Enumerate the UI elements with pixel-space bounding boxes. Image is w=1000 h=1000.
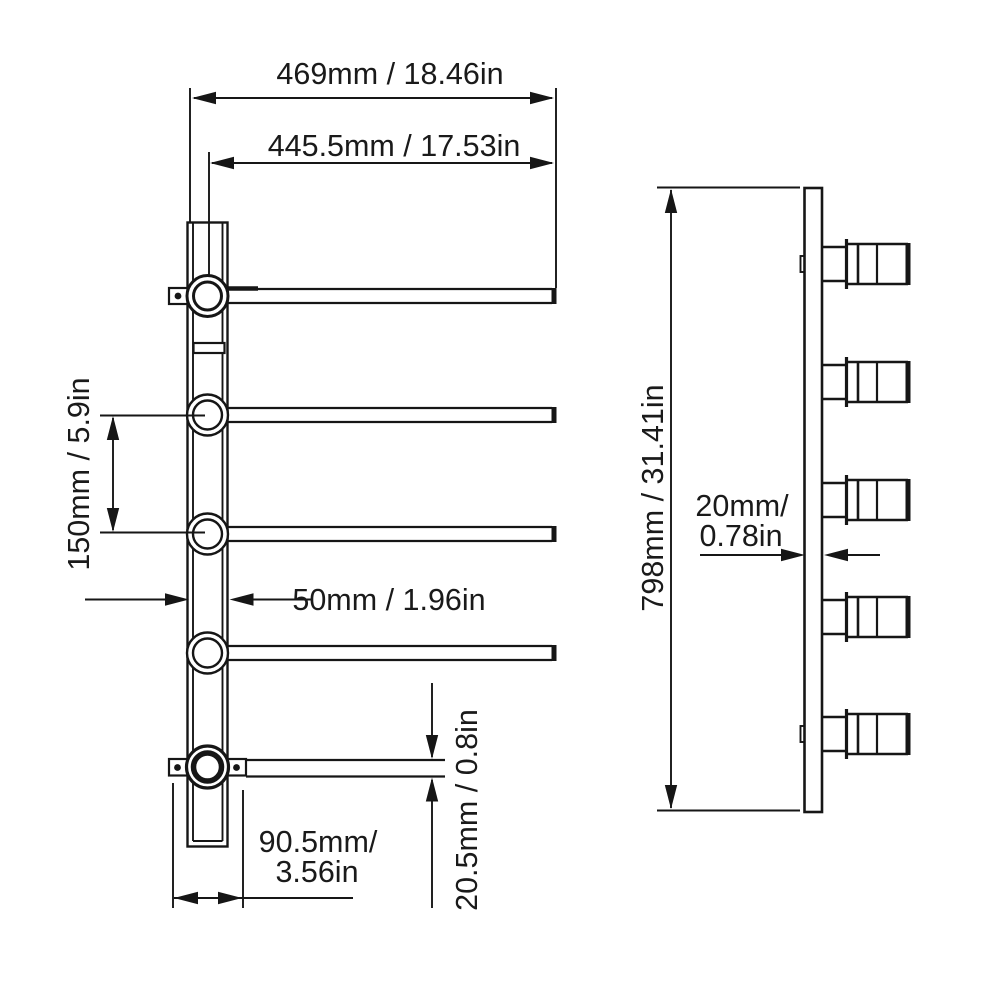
- towel-rack-dimension-drawing: 469mm / 18.46in 445.5mm / 17.53in 150mm …: [0, 0, 1000, 1000]
- bar-stub-3: [823, 475, 911, 525]
- arrowhead-left: [174, 892, 198, 904]
- towel-bar-3: [228, 526, 557, 542]
- bar-holder-3: [187, 514, 228, 555]
- bar-stub-4: [823, 592, 911, 642]
- bar-stub-2: [823, 357, 911, 407]
- arrowhead-right: [781, 549, 805, 561]
- bar-stub-1: [823, 239, 911, 289]
- base-offset-label-line1: 90.5mm/: [259, 825, 378, 859]
- arrowhead-right: [218, 892, 242, 904]
- mounting-plate: [805, 188, 823, 812]
- arrowhead-left: [230, 593, 254, 605]
- bar-holder-1: [187, 276, 228, 317]
- bar-stub-5: [823, 709, 911, 759]
- arrowhead-left: [824, 549, 848, 561]
- overall-width-label: 469mm / 18.46in: [276, 57, 503, 91]
- arrowhead-down: [665, 785, 677, 809]
- bar-length-label: 445.5mm / 17.53in: [268, 129, 521, 163]
- arrowhead-left: [192, 92, 216, 104]
- arrowhead-down: [107, 508, 119, 532]
- post-connector-detail: [194, 343, 225, 353]
- screenshot-canvas: 469mm / 18.46in 445.5mm / 17.53in 150mm …: [0, 0, 1000, 1000]
- towel-bar-4: [228, 645, 557, 661]
- dimension-overall-width: 469mm / 18.46in: [190, 57, 556, 288]
- plate-depth-label-line1: 20mm/: [695, 489, 789, 523]
- base-offset-label-line2: 3.56in: [275, 855, 358, 889]
- bar-holder-5: [187, 746, 229, 788]
- arrowhead-down: [426, 735, 438, 759]
- towel-bar-1: [228, 288, 557, 304]
- towel-bar-5: [246, 760, 445, 777]
- dimension-post-width: 50mm / 1.96in: [85, 583, 486, 617]
- arrowhead-up: [426, 778, 438, 802]
- overall-height-label: 798mm / 31.41in: [636, 384, 670, 611]
- dimension-bar-spacing: 150mm / 5.9in: [62, 377, 205, 570]
- bar-holder-4: [187, 633, 228, 674]
- dimension-bar-length: 445.5mm / 17.53in: [209, 129, 554, 275]
- arrowhead-right: [165, 593, 189, 605]
- dimension-plate-depth: 20mm/ 0.78in: [695, 489, 880, 561]
- arrowhead-left: [210, 157, 234, 169]
- arrowhead-up: [107, 416, 119, 440]
- towel-bar-2: [228, 407, 557, 423]
- arrowhead-right: [530, 92, 554, 104]
- arrowhead-right: [530, 157, 554, 169]
- front-view: [169, 223, 557, 847]
- post-width-label: 50mm / 1.96in: [292, 583, 485, 617]
- bar-spacing-label: 150mm / 5.9in: [62, 377, 96, 570]
- plate-depth-label-line2: 0.78in: [699, 519, 782, 553]
- arrowhead-up: [665, 189, 677, 213]
- dimension-bar-thickness: 20.5mm / 0.8in: [426, 683, 484, 911]
- side-view: [801, 188, 911, 812]
- bar-thickness-label: 20.5mm / 0.8in: [450, 709, 484, 911]
